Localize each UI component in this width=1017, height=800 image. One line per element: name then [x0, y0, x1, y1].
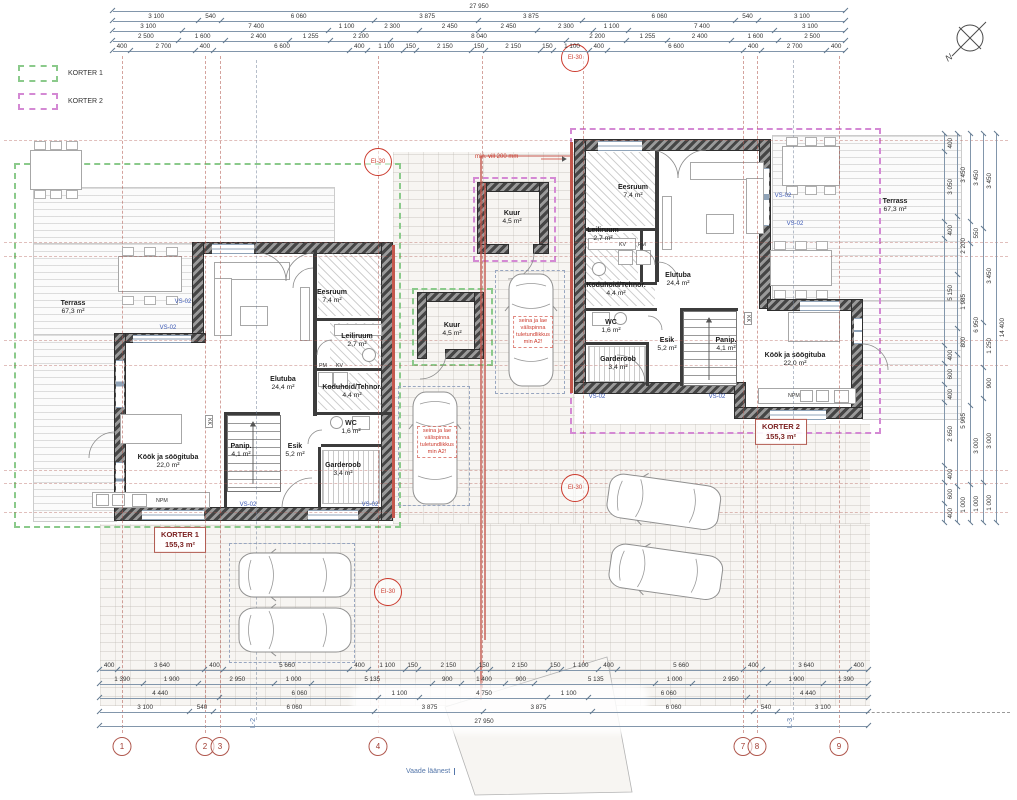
car — [607, 538, 725, 605]
room-label-eesruum-k1: Eesruum 7,4 m² — [317, 288, 347, 306]
dimension-segment: 1 100 — [329, 25, 364, 32]
dimension-segment: 3 875 — [484, 706, 593, 713]
fire-safety-note: seina ja laevälispinnatuletundlikkusmin … — [417, 426, 457, 458]
dimension-segment: 6 060 — [589, 692, 747, 699]
dimension-segment: 3 100 — [113, 25, 183, 32]
bottom-dimension-row: 1 3901 9002 9501 0005 1359001 4009005 13… — [100, 676, 868, 685]
dimension-segment: 7 400 — [183, 25, 329, 32]
dimension-segment: 2 500 — [779, 35, 845, 42]
dimension-segment: 5 660 — [224, 664, 351, 671]
dimension-segment: 600 — [944, 364, 956, 385]
dimension-segment: 4 750 — [420, 692, 548, 699]
dimension-segment: 1 250 — [983, 323, 995, 367]
dimension-segment: 3 875 — [479, 15, 583, 22]
dimension-segment: 1 900 — [769, 678, 824, 685]
dimension-segment: 800 — [957, 329, 969, 355]
dimension-segment: 1 100 — [379, 692, 421, 699]
dimension-segment: 1 100 — [368, 45, 404, 52]
top-dimension-row: 4002 7004006 6004001 1001502 1501502 150… — [113, 43, 845, 52]
dimension-segment: 6 060 — [214, 706, 375, 713]
fire-rating-ei30: EI-30 — [374, 578, 402, 606]
dimension-segment: 2 950 — [693, 678, 769, 685]
kv-label-k1: KV — [336, 363, 343, 369]
dimension-segment: 400 — [944, 385, 956, 403]
right-dimension-column: 4003 0504005 1504006004002 650400600400 — [944, 134, 956, 522]
dimension-segment: 6 600 — [608, 45, 744, 52]
svg-text:N: N — [943, 51, 954, 63]
room-label-kook-k1: Köök ja söögituba 22,0 m² — [138, 453, 199, 471]
dimension-segment: 3 450 — [983, 229, 995, 324]
dimension-segment: 900 — [983, 368, 995, 399]
room-label-elutuba-k1: Elutuba 24,4 m² — [270, 375, 296, 393]
dimension-segment: 5 135 — [312, 678, 433, 685]
dimension-segment: 900 — [433, 678, 462, 685]
pm-label-k2: PM — [638, 242, 646, 248]
dimension-segment: 7 400 — [629, 25, 775, 32]
kv-label-k2: KV — [619, 242, 626, 248]
dimension-segment: 1 390 — [824, 678, 868, 685]
dimension-segment: 1 000 — [970, 485, 982, 522]
bottom-dimension-row: 27 950 — [100, 718, 868, 727]
north-compass-icon: N — [943, 22, 986, 64]
fire-rating-ei30: EI-30 — [364, 148, 392, 176]
room-label-terrass-k1: Terrass 67,3 m² — [61, 299, 86, 317]
room-label-wc-k1: WC 1,6 m² — [341, 419, 360, 437]
vs02-label: VS-02 — [709, 394, 726, 400]
room-label-kuur-lower: Kuur 4,5 m² — [442, 321, 461, 339]
dimension-segment: 3 875 — [375, 15, 479, 22]
dimension-segment: 1 600 — [179, 35, 227, 42]
top-dimension-row: 2 5001 6002 4001 2552 2008 0402 2001 255… — [113, 33, 845, 42]
room-label-leiliruum-k1: Leiliruum 2,7 m² — [341, 332, 373, 350]
dimension-segment: 3 100 — [759, 15, 845, 22]
dimension-segment: 5 135 — [535, 678, 656, 685]
dimension-segment: 27 950 — [113, 5, 845, 12]
dimension-segment: 2 400 — [668, 35, 732, 42]
dimension-segment: 2 150 — [486, 45, 541, 52]
npm-label-k2: NPM — [788, 393, 800, 399]
bottom-dimension-row: 4003 6404005 6604001 1001502 1501502 150… — [100, 662, 868, 671]
dimension-segment: 2 150 — [417, 45, 472, 52]
dimension-segment: 2 200 — [331, 35, 391, 42]
dimension-segment: 1 255 — [290, 35, 331, 42]
dimension-segment: 2 700 — [762, 45, 827, 52]
dimension-segment: 3 640 — [118, 664, 205, 671]
right-dimension-column: 3 4502 2001 9858005 9651 000 — [957, 134, 969, 522]
dimension-segment: 14 400 — [996, 134, 1008, 522]
korter1-badge: KORTER 1 155,3 m² — [154, 527, 206, 553]
dimension-segment: 1 100 — [562, 664, 599, 671]
dimension-segment: 3 100 — [778, 706, 868, 713]
vs02-label: VS-02 — [787, 221, 804, 227]
dimension-segment: 2 150 — [491, 664, 549, 671]
dimension-segment: 1 000 — [957, 487, 969, 522]
dimension-segment: 2 400 — [226, 35, 290, 42]
dimension-segment: 2 300 — [538, 25, 594, 32]
dimension-segment: 2 300 — [364, 25, 420, 32]
dimension-segment: 400 — [944, 222, 956, 240]
dimension-segment: 3 000 — [983, 399, 995, 483]
dimension-segment: 1 100 — [369, 664, 406, 671]
dimension-segment: 400 — [944, 346, 956, 364]
top-dimension-row: 3 1005406 0603 8753 8756 0605403 100 — [113, 13, 845, 22]
dimension-segment: 400 — [827, 45, 845, 52]
dimension-segment: 5 660 — [618, 664, 745, 671]
car — [239, 549, 351, 601]
dimension-segment: 1 100 — [548, 692, 590, 699]
room-label-elutuba-k2: Elutuba 24,4 m² — [665, 271, 691, 289]
dimension-segment: 6 060 — [593, 706, 754, 713]
dimension-segment: 27 950 — [100, 720, 868, 727]
dimension-segment: 900 — [506, 678, 535, 685]
car — [605, 468, 723, 535]
dimension-segment: 400 — [944, 134, 956, 152]
dimension-segment: 2 450 — [420, 25, 479, 32]
dimension-segment: 1 000 — [275, 678, 311, 685]
dimension-segment: 1 600 — [732, 35, 780, 42]
dimension-segment: 3 100 — [100, 706, 190, 713]
room-label-terrass-k2: Terrass 67,3 m² — [883, 197, 908, 215]
right-dimension-column: 3 4503 4501 2509003 0001 000 — [983, 134, 995, 522]
dimension-segment: 5 965 — [957, 355, 969, 486]
car — [239, 604, 351, 656]
dimension-segment: 2 650 — [944, 403, 956, 466]
room-label-leiliruum-k2: Leiliruum 2,7 m² — [587, 226, 619, 244]
vs02-label: VS-02 — [775, 193, 792, 199]
dimension-segment: 600 — [944, 483, 956, 504]
dimension-segment: 3 875 — [375, 706, 484, 713]
dimension-segment: 3 450 — [983, 134, 995, 229]
dimension-segment: 4 440 — [748, 692, 868, 699]
dimension-segment: 2 200 — [957, 217, 969, 275]
dimension-segment: 5 150 — [944, 239, 956, 346]
room-label-panip-k2: Panip. 4,1 m² — [715, 336, 736, 354]
dimension-segment: 3 050 — [944, 152, 956, 222]
dimension-segment: 6 950 — [970, 244, 982, 406]
room-label-garderoob-k2: Garderoob 3,4 m² — [600, 355, 636, 373]
top-dimension-row: 27 950 — [113, 3, 845, 12]
right-dimension-column: 14 400 — [996, 134, 1008, 522]
dimension-segment: 2 150 — [419, 664, 477, 671]
vs02-label: VS-02 — [589, 394, 606, 400]
bottom-dimension-row: 3 1005406 0603 8753 8756 0605403 100 — [100, 704, 868, 713]
dimension-segment: 6 060 — [222, 15, 375, 22]
vs02-label: VS-02 — [160, 325, 177, 331]
dimension-segment: 1 900 — [144, 678, 199, 685]
dimension-segment: 2 950 — [199, 678, 275, 685]
room-label-esik-k1: Esik 5,2 m² — [285, 442, 304, 460]
dimension-segment: 1 255 — [627, 35, 668, 42]
dimension-segment: 400 — [944, 466, 956, 484]
dimension-segment: 400 — [850, 664, 868, 671]
dimension-segment: 3 000 — [970, 406, 982, 485]
room-label-esik-k2: Esik 5,2 m² — [657, 336, 676, 354]
dimension-segment: 540 — [190, 706, 213, 713]
dimension-segment: 2 200 — [567, 35, 627, 42]
right-dimension-column: 3 4505506 9503 0001 000 — [970, 134, 982, 522]
dimension-segment: 4 440 — [100, 692, 220, 699]
dimension-segment: 3 100 — [775, 25, 845, 32]
dimension-segment: 6 600 — [214, 45, 350, 52]
npm-label-k1: NPM — [156, 498, 168, 504]
room-label-koduhoid-k2: Koduhoid/Tehnor. 4,4 m² — [586, 281, 645, 299]
korter2-badge: KORTER 2 155,3 m² — [755, 419, 807, 445]
room-label-garderoob-k1: Garderoob 3,4 m² — [325, 461, 361, 479]
pm-label-k1: PM — [319, 363, 327, 369]
vs02-label: VS-02 — [362, 502, 379, 508]
vs02-label: VS-02 — [240, 502, 257, 508]
kk-label-k2: KK — [744, 312, 752, 325]
fire-safety-note: seina ja laevälispinnatuletundlikkusmin … — [513, 316, 553, 348]
dimension-segment: 2 500 — [113, 35, 179, 42]
dimension-segment: 3 450 — [970, 134, 982, 222]
top-dimension-row: 3 1007 4001 1002 3002 4502 4502 3001 100… — [113, 23, 845, 32]
dimension-segment: 1 985 — [957, 275, 969, 329]
min-vill-note: min. vill 200 mm — [475, 154, 518, 160]
dimension-segment: 3 450 — [957, 134, 969, 217]
bottom-dimension-row: 4 4406 0601 1004 7501 1006 0604 440 — [100, 690, 868, 699]
dimension-segment: 1 400 — [462, 678, 507, 685]
room-label-koduhoid-k1: Koduhoid/Tehnor. 4,4 m² — [322, 383, 381, 401]
room-label-panip-k1: Panip. 4,1 m² — [230, 442, 251, 460]
fire-rating-ei30: EI-30 — [561, 474, 589, 502]
dimension-segment: 1 390 — [100, 678, 144, 685]
dimension-segment: 6 060 — [583, 15, 736, 22]
dimension-segment: 6 060 — [220, 692, 378, 699]
dimension-segment: 2 700 — [131, 45, 196, 52]
room-label-kuur-upper: Kuur 4,5 m² — [502, 209, 521, 227]
dimension-segment: 1 000 — [656, 678, 692, 685]
dimension-segment: 540 — [754, 706, 777, 713]
dimension-segment: 1 100 — [594, 25, 629, 32]
room-label-eesruum-k2: Eesruum 7,4 m² — [618, 183, 648, 201]
room-label-wc-k2: WC 1,6 m² — [601, 318, 620, 336]
legend-korter2: KORTER 2 — [18, 93, 103, 110]
floor-plan-sheet: N Terrass 67,3 m² Eesruum 7,4 m² Leiliru… — [0, 0, 1017, 800]
door-arcs — [89, 150, 888, 508]
legend-korter1-swatch — [18, 65, 58, 82]
kk-label-k1: KK — [205, 415, 213, 428]
room-label-kook-k2: Köök ja söögituba 22,0 m² — [765, 351, 826, 369]
legend-korter1: KORTER 1 — [18, 65, 103, 82]
dimension-segment: 1 100 — [554, 45, 590, 52]
dimension-segment: 2 450 — [479, 25, 538, 32]
view-direction-label: Vaade läänest — [406, 768, 455, 775]
dimension-segment: 3 640 — [763, 664, 850, 671]
vs02-label: VS-02 — [175, 299, 192, 305]
legend-korter2-swatch — [18, 93, 58, 110]
dimension-segment: 8 040 — [391, 35, 567, 42]
dimension-segment: 1 000 — [983, 483, 995, 522]
dimension-segment: 3 100 — [113, 15, 199, 22]
